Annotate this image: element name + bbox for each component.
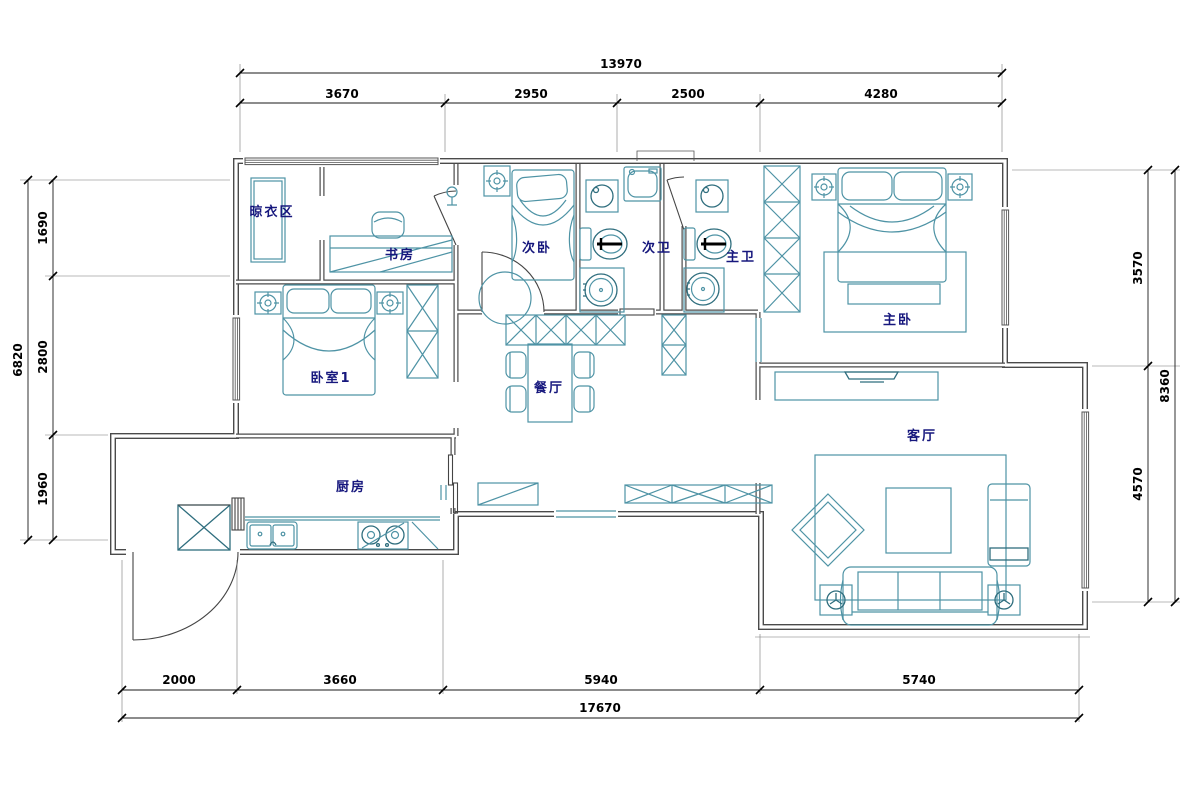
living-rug: [815, 455, 1006, 600]
coffee-table: [886, 488, 951, 553]
dim-top-seg-1: 3670: [325, 87, 358, 101]
window-top-study: [245, 158, 438, 165]
window-kitchen-shaft: [441, 485, 446, 500]
fridge: [178, 505, 230, 550]
room-label-bath-2: 次卫: [642, 240, 672, 256]
bedroom2-nightstand: [484, 166, 510, 196]
room-label-bedroom-1: 卧室1: [310, 370, 351, 386]
room-label-living: 客厅: [907, 428, 937, 444]
chaise-lounge: [988, 484, 1030, 566]
room-label-study: 书房: [385, 247, 415, 263]
master-bath-toilet: [684, 228, 731, 260]
dimension-top: 13970 3670 2950 2500 4280: [236, 57, 1006, 152]
drying-rack: [251, 178, 285, 262]
bedroom2-bed: [512, 170, 574, 280]
kitchen-stove: [358, 522, 408, 549]
window-master-bedroom-right: [1002, 210, 1009, 325]
study-chair: [372, 212, 404, 238]
dim-top-total: 13970: [600, 57, 642, 71]
pantry-column: [232, 498, 244, 530]
dim-left-seg-2: 2800: [36, 340, 50, 373]
dimension-right: 8360 3570 4570: [1012, 166, 1180, 606]
window-bedroom1-left: [233, 318, 240, 400]
bedroom1-nightstand-left: [255, 292, 281, 314]
shoe-cabinet: [478, 483, 538, 505]
dim-top-seg-3: 2500: [671, 87, 704, 101]
dim-bottom-seg-2: 3660: [323, 673, 356, 687]
dimension-bottom: 2000 3660 5940 5740 17670: [118, 560, 1083, 722]
master-bath-door: [667, 177, 684, 230]
dimension-left: 6820 1690 2800 1960: [11, 176, 230, 544]
floor-plan-drawing: 晾衣区 书房 次卧 次卫 主卫 主卧 卧室1 餐厅 厨房 客厅 13970 36…: [0, 0, 1200, 800]
dim-right-seg-2: 4570: [1131, 467, 1145, 500]
exterior-walls: [113, 161, 1085, 627]
bath2-shower-basin: [586, 180, 618, 212]
master-bath-shower-basin: [696, 180, 728, 212]
tv-stand: [775, 372, 938, 400]
bedroom1-nightstand-right: [377, 292, 403, 314]
accent-chair: [792, 494, 864, 566]
dim-bottom-seg-1: 2000: [162, 673, 195, 687]
room-label-kitchen: 厨房: [336, 479, 366, 495]
sofa: [841, 567, 1000, 625]
dim-left-seg-3: 1960: [36, 472, 50, 505]
dim-right-total: 8360: [1158, 369, 1172, 402]
study-door: [434, 191, 456, 245]
dim-bottom-total: 17670: [579, 701, 621, 715]
bath2-door-threshold: [620, 309, 654, 315]
dim-top-seg-2: 2950: [514, 87, 547, 101]
room-label-bath-master: 主卫: [726, 249, 756, 265]
study-floor-lamp: [447, 187, 457, 205]
master-bedroom-opening: [756, 318, 761, 362]
hall-cabinet: [625, 485, 772, 503]
bath2-sink: [580, 268, 624, 312]
dining-side-cabinet: [662, 315, 686, 375]
dim-right-seg-1: 3570: [1131, 251, 1145, 284]
master-nightstand-left: [812, 174, 836, 200]
dining-cabinet: [506, 315, 625, 345]
bedroom2-round-rug: [479, 272, 531, 324]
dim-left-total: 6820: [11, 343, 25, 376]
window-living-room-right: [1082, 412, 1089, 588]
dim-left-seg-1: 1690: [36, 211, 50, 244]
bath2-toilet: [580, 228, 627, 260]
floor-plan-canvas: 晾衣区 书房 次卧 次卫 主卫 主卧 卧室1 餐厅 厨房 客厅 13970 36…: [0, 0, 1200, 800]
entry-door: [133, 552, 238, 640]
master-bed-bench: [848, 284, 940, 304]
master-bath-sink: [684, 268, 724, 312]
bedroom1-wardrobe: [407, 285, 438, 378]
master-nightstand-right: [948, 174, 972, 200]
dim-bottom-seg-4: 5740: [902, 673, 935, 687]
dim-bottom-seg-3: 5940: [584, 673, 617, 687]
kitchen-sink: [247, 522, 297, 549]
dim-top-seg-4: 4280: [864, 87, 897, 101]
room-label-bedroom-master: 主卧: [883, 312, 913, 328]
room-label-dining: 餐厅: [533, 380, 564, 396]
kitchen-sliding-door: [449, 455, 458, 513]
master-bed: [824, 168, 966, 332]
room-label-drying-area: 晾衣区: [249, 204, 294, 220]
master-wardrobe: [764, 166, 800, 312]
bath2-washing-machine: [624, 167, 661, 201]
room-label-bedroom-2: 次卧: [522, 240, 552, 256]
